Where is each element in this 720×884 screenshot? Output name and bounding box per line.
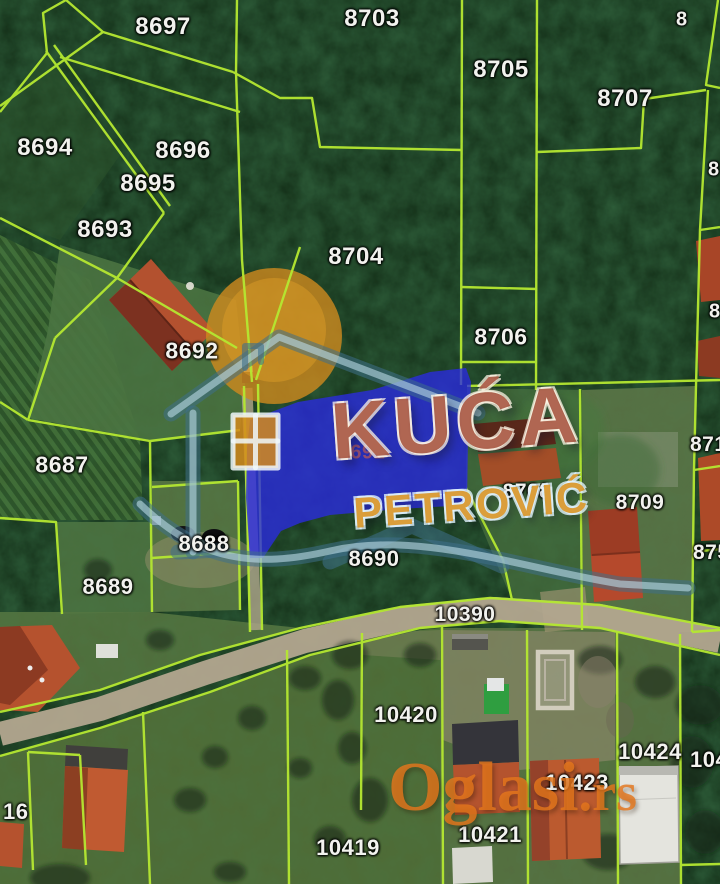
white-building	[619, 766, 679, 864]
house-roof	[453, 762, 520, 815]
real-estate-listing-map-image: 8697870387058707869486968695869387048706…	[0, 0, 720, 884]
house-roof	[588, 507, 640, 556]
logo-window-icon	[233, 415, 278, 468]
map-canvas	[0, 0, 720, 884]
